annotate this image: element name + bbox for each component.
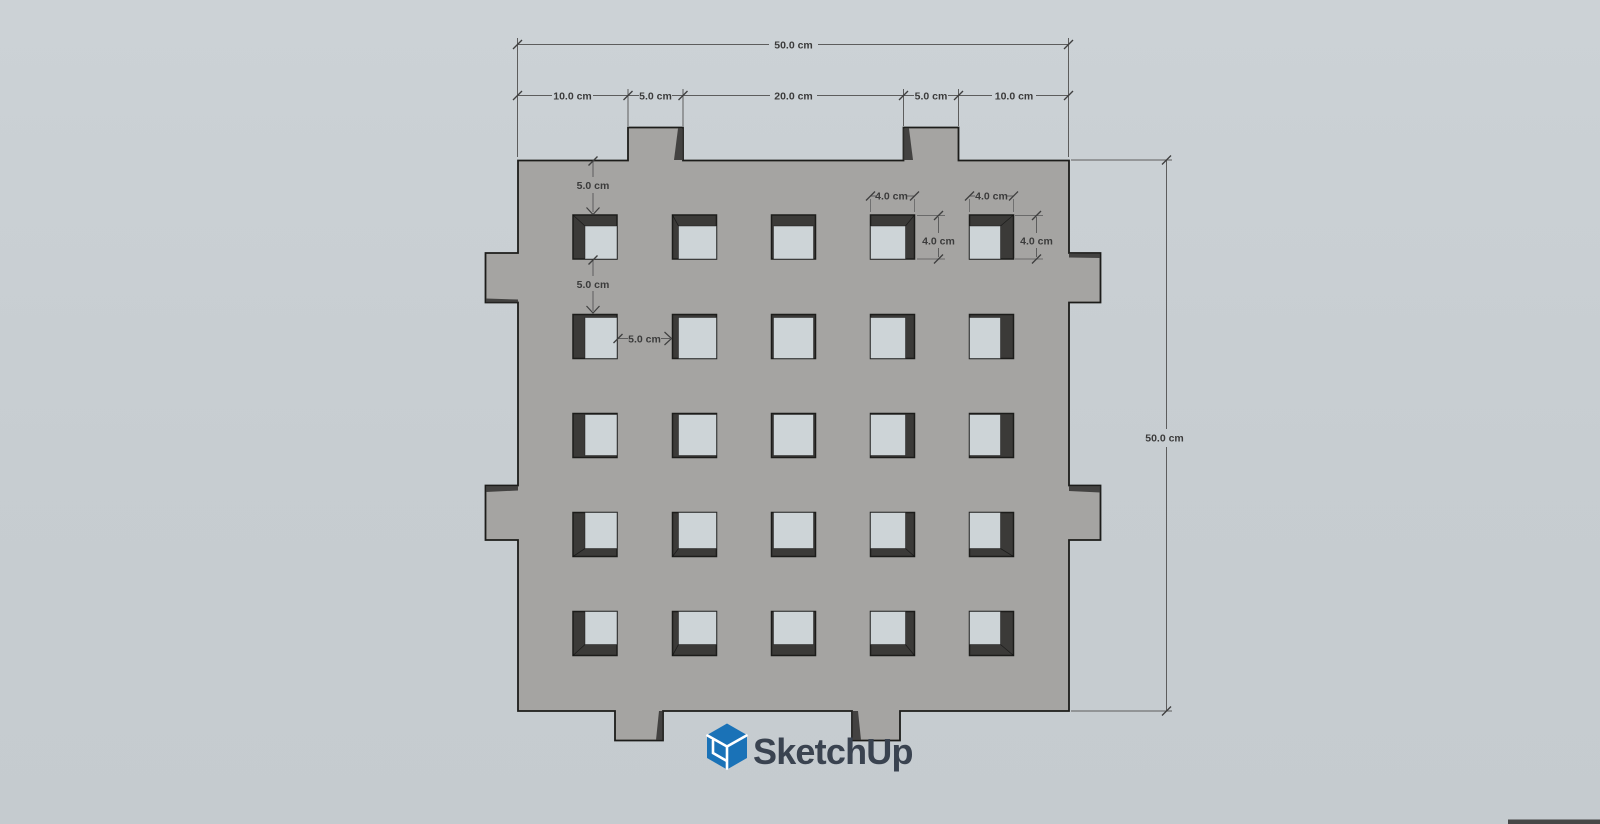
dim-label-seg2: 5.0 cm bbox=[639, 91, 672, 103]
dim-top-segments: 10.0 cm 5.0 cm 20.0 cm 5.0 cm 10.0 cm bbox=[513, 89, 1073, 126]
hole-opening bbox=[871, 226, 906, 259]
hole-opening bbox=[585, 513, 617, 549]
square-hole-r4-c2 bbox=[673, 513, 717, 557]
right-tab1-wall bbox=[1069, 253, 1100, 258]
sketchup-watermark: SketchUp bbox=[707, 724, 913, 773]
square-hole-r4-c1 bbox=[573, 513, 617, 557]
square-hole-r4-c3 bbox=[772, 513, 816, 557]
square-hole-r1-c3 bbox=[772, 215, 816, 259]
hole-opening bbox=[871, 513, 906, 549]
hole-opening bbox=[774, 513, 814, 549]
hole-opening bbox=[585, 318, 617, 359]
hole-opening bbox=[585, 612, 617, 645]
hole-opening bbox=[774, 612, 814, 645]
dim-label-seg4: 5.0 cm bbox=[915, 91, 948, 103]
hole-opening bbox=[679, 318, 717, 359]
hole-opening bbox=[679, 612, 717, 645]
hole-opening bbox=[970, 318, 1001, 359]
dim-label-top-total: 50.0 cm bbox=[774, 40, 813, 52]
sketchup-logo-text: SketchUp bbox=[753, 731, 913, 772]
square-hole-r5-c5 bbox=[970, 612, 1014, 656]
square-hole-r1-c5 bbox=[970, 215, 1014, 259]
hole-opening bbox=[679, 226, 717, 259]
perforated-plate[interactable] bbox=[486, 128, 1101, 741]
hole-opening bbox=[679, 415, 717, 456]
dim-label-hole4-width: 4.0 cm bbox=[875, 191, 908, 203]
square-hole-r1-c1 bbox=[573, 215, 617, 259]
hole-opening bbox=[774, 415, 814, 456]
hole-opening bbox=[774, 226, 814, 259]
dim-label-hole4-height: 4.0 cm bbox=[922, 236, 955, 248]
dim-label-hole5-width: 4.0 cm bbox=[975, 191, 1008, 203]
hole-opening bbox=[970, 415, 1001, 456]
square-hole-r5-c1 bbox=[573, 612, 617, 656]
hole-opening bbox=[970, 612, 1001, 645]
square-hole-r3-c1 bbox=[573, 414, 617, 458]
dim-label-col-gap: 5.0 cm bbox=[628, 334, 661, 346]
dim-label-seg3: 20.0 cm bbox=[774, 91, 813, 103]
dim-right-total: 50.0 cm bbox=[1071, 156, 1184, 716]
taskbar-window-sliver[interactable] bbox=[1508, 820, 1600, 824]
model-drawing-canvas[interactable]: 50.0 cm 10.0 cm 5. bbox=[0, 0, 1600, 824]
dim-label-hole5-height: 4.0 cm bbox=[1020, 236, 1053, 248]
hole-opening bbox=[585, 226, 617, 259]
sketchup-logo-icon bbox=[707, 724, 747, 770]
square-hole-r5-c2 bbox=[673, 612, 717, 656]
square-hole-r2-c4 bbox=[871, 315, 915, 359]
square-hole-r3-c3 bbox=[772, 414, 816, 458]
dim-label-right-total: 50.0 cm bbox=[1145, 433, 1184, 445]
hole-opening bbox=[970, 226, 1001, 259]
hole-opening bbox=[871, 318, 906, 359]
dim-label-edge-offset: 5.0 cm bbox=[577, 180, 610, 192]
square-hole-r2-c3 bbox=[772, 315, 816, 359]
square-hole-r5-c4 bbox=[871, 612, 915, 656]
hole-opening bbox=[585, 415, 617, 456]
hole-opening bbox=[970, 513, 1001, 549]
square-hole-r4-c5 bbox=[970, 513, 1014, 557]
hole-opening bbox=[774, 318, 814, 359]
hole-opening bbox=[679, 513, 717, 549]
square-hole-r4-c4 bbox=[871, 513, 915, 557]
hole-opening bbox=[871, 612, 906, 645]
dim-label-seg5: 10.0 cm bbox=[995, 91, 1034, 103]
square-hole-r5-c3 bbox=[772, 612, 816, 656]
square-hole-r2-c5 bbox=[970, 315, 1014, 359]
hole-opening bbox=[871, 415, 906, 456]
square-hole-r3-c4 bbox=[871, 414, 915, 458]
sketchup-viewport[interactable]: 50.0 cm 10.0 cm 5. bbox=[0, 0, 1600, 824]
square-hole-r2-c2 bbox=[673, 315, 717, 359]
square-hole-r1-c4 bbox=[871, 215, 915, 259]
dim-label-seg1: 10.0 cm bbox=[553, 91, 592, 103]
dim-label-row-gap: 5.0 cm bbox=[577, 279, 610, 291]
square-hole-r1-c2 bbox=[673, 215, 717, 259]
square-hole-r3-c5 bbox=[970, 414, 1014, 458]
square-hole-r2-c1 bbox=[573, 315, 617, 359]
square-hole-r3-c2 bbox=[673, 414, 717, 458]
